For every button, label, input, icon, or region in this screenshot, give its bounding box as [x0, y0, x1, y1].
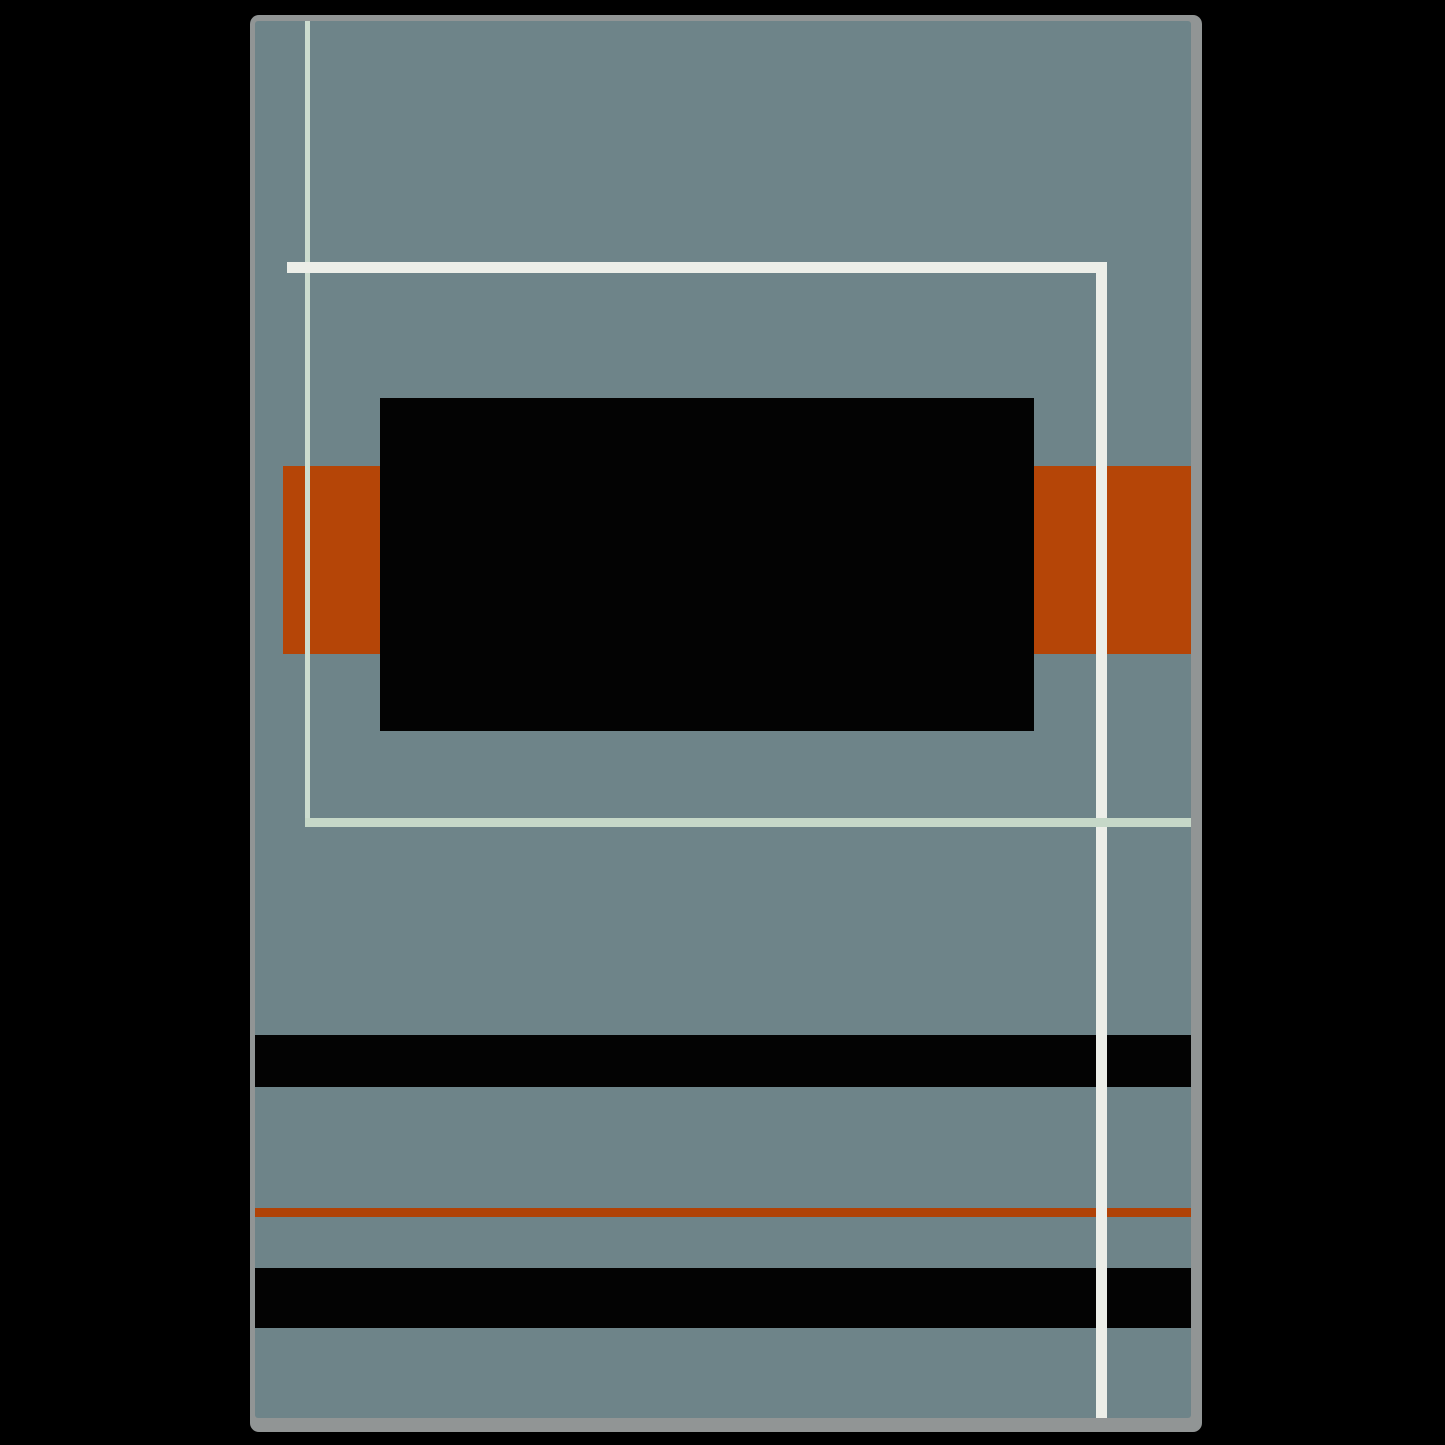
artwork-mockup — [0, 0, 1445, 1445]
black-stripe-upper — [255, 1035, 1191, 1087]
mint-horizontal-line — [305, 818, 1191, 827]
white-vertical-line — [1096, 262, 1107, 1418]
white-horizontal-line — [287, 262, 1107, 273]
artwork-canvas — [255, 21, 1191, 1418]
orange-thin-rule — [255, 1208, 1191, 1217]
mint-vertical-line — [305, 21, 310, 827]
black-stripe-lower — [255, 1268, 1191, 1328]
black-rectangle — [380, 398, 1034, 731]
artwork-frame — [250, 15, 1202, 1432]
